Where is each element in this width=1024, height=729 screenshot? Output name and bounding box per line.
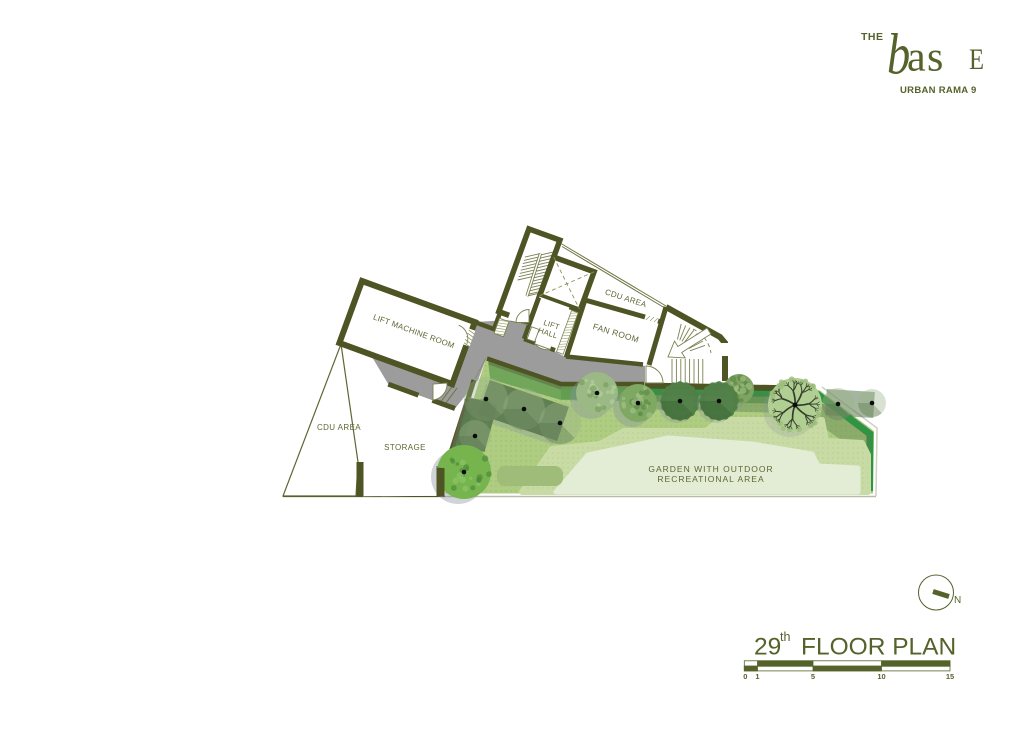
svg-text:1: 1	[755, 672, 759, 681]
svg-text:URBAN RAMA 9: URBAN RAMA 9	[900, 85, 977, 96]
svg-text:E: E	[969, 43, 984, 76]
svg-text:10: 10	[877, 672, 885, 681]
svg-text:29: 29	[754, 634, 781, 661]
svg-text:0: 0	[743, 672, 747, 681]
svg-text:STORAGE: STORAGE	[384, 443, 426, 452]
svg-text:CDU AREA: CDU AREA	[317, 423, 361, 432]
svg-text:FLOOR PLAN: FLOOR PLAN	[801, 634, 956, 661]
svg-text:RECREATIONAL AREA: RECREATIONAL AREA	[657, 474, 764, 484]
svg-text:N: N	[954, 595, 961, 606]
svg-text:GARDEN WITH OUTDOOR: GARDEN WITH OUTDOOR	[648, 464, 773, 474]
svg-text:a: a	[907, 35, 926, 81]
svg-text:5: 5	[811, 672, 815, 681]
svg-text:THE: THE	[861, 31, 884, 43]
svg-text:15: 15	[946, 672, 954, 681]
svg-text:s: s	[927, 35, 943, 81]
svg-text:th: th	[780, 630, 790, 644]
